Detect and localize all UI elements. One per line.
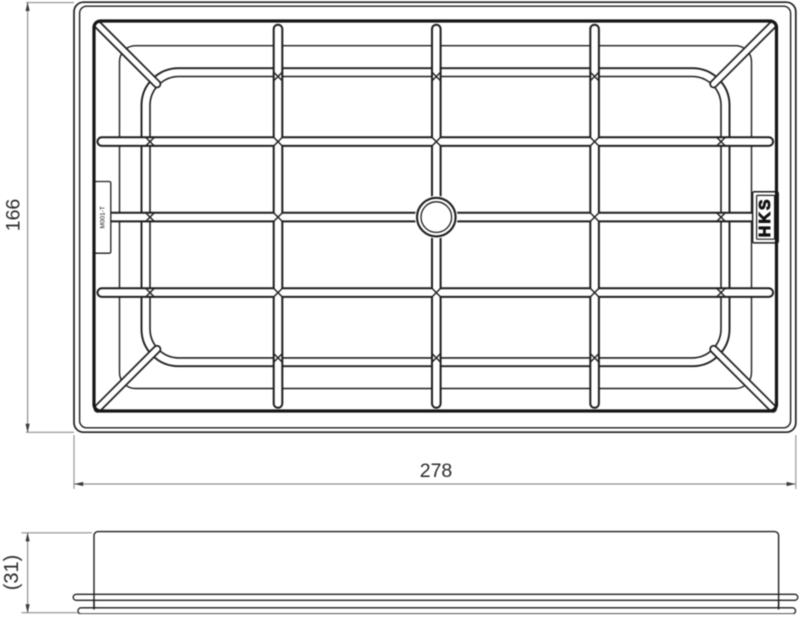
svg-text:(31): (31) <box>1 555 23 591</box>
svg-text:166: 166 <box>3 199 25 232</box>
svg-text:M001-T: M001-T <box>99 206 106 228</box>
svg-text:278: 278 <box>420 460 453 482</box>
svg-text:HKS: HKS <box>757 197 774 237</box>
